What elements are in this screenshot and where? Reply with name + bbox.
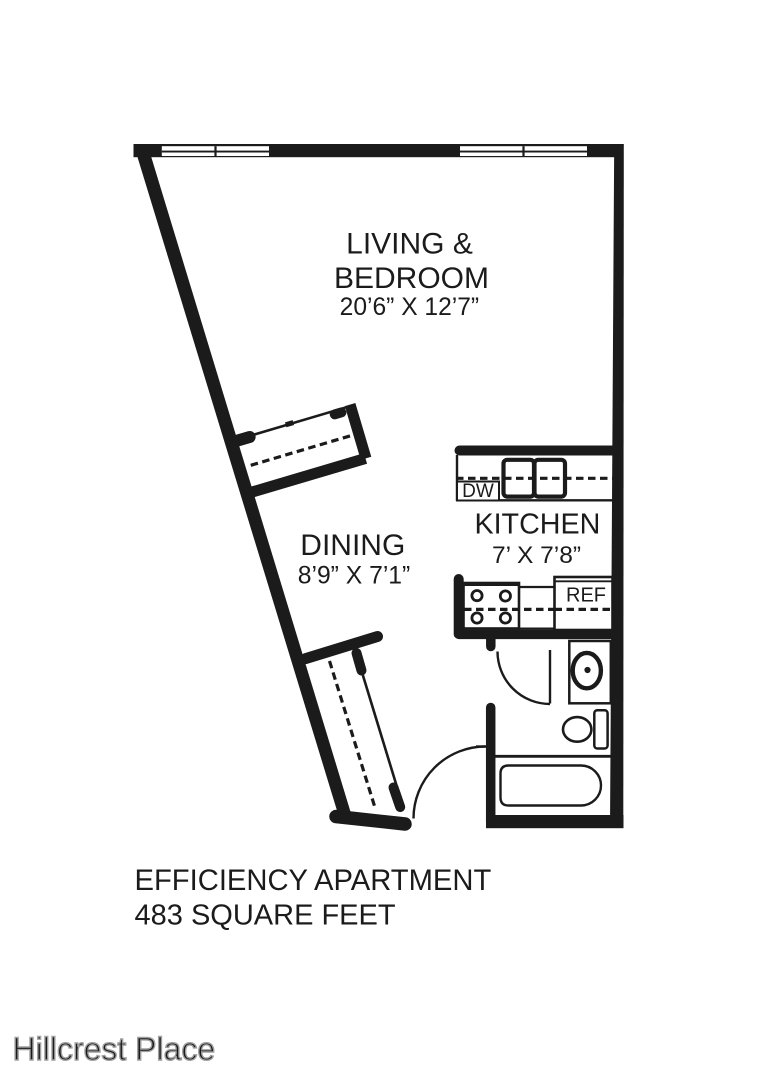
- svg-text:483 SQUARE FEET: 483 SQUARE FEET: [135, 900, 396, 932]
- svg-text:20’6” X 12’7”: 20’6” X 12’7”: [340, 294, 479, 321]
- svg-text:REF: REF: [566, 585, 606, 607]
- svg-text:BEDROOM: BEDROOM: [334, 262, 489, 295]
- svg-text:Hillcrest Place: Hillcrest Place: [13, 1031, 216, 1067]
- svg-text:DW: DW: [462, 481, 494, 502]
- svg-text:DINING: DINING: [300, 529, 405, 562]
- svg-text:7’ X 7’8”: 7’ X 7’8”: [492, 542, 581, 569]
- svg-text:LIVING &: LIVING &: [346, 228, 473, 261]
- svg-text:EFFICIENCY APARTMENT: EFFICIENCY APARTMENT: [135, 865, 492, 897]
- svg-text:KITCHEN: KITCHEN: [474, 508, 600, 540]
- svg-text:8’9” X 7’1”: 8’9” X 7’1”: [298, 563, 411, 590]
